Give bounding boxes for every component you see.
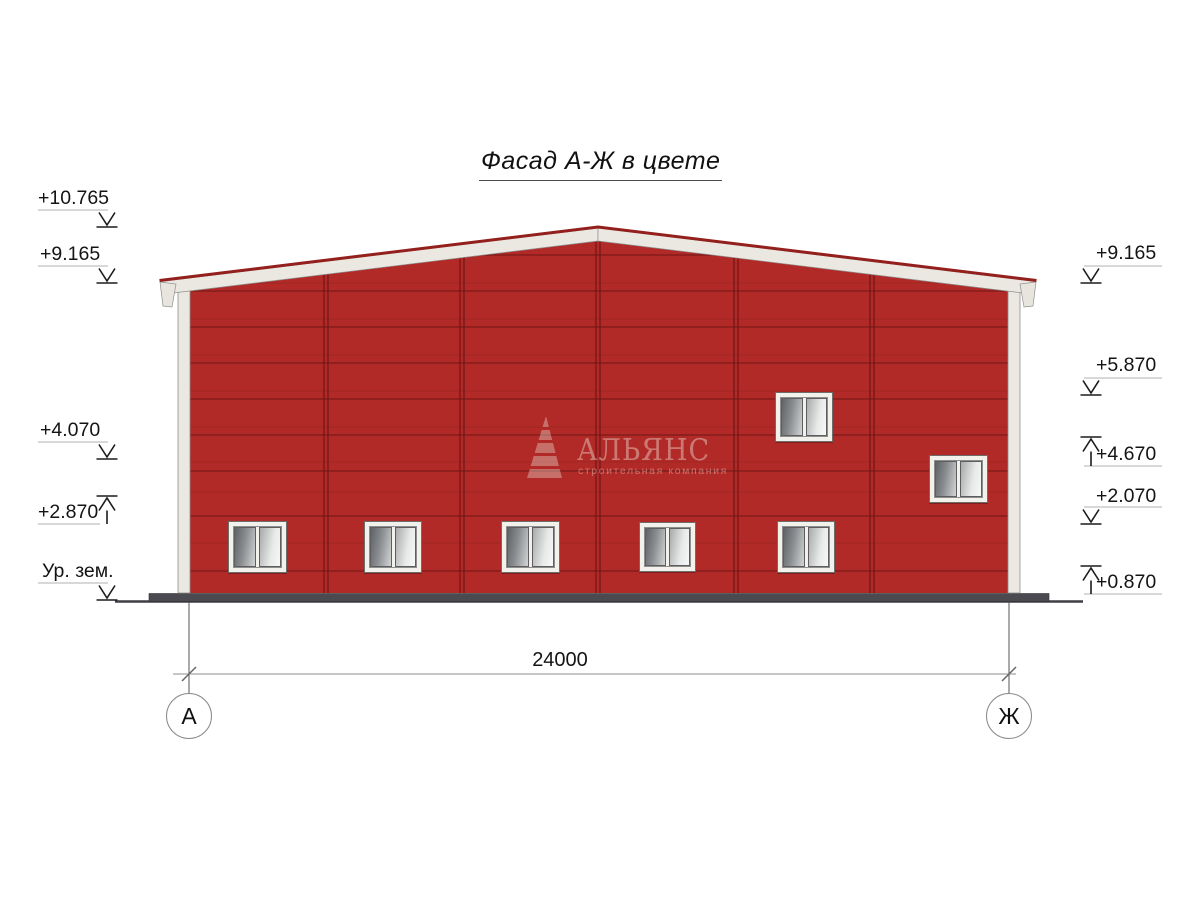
eave-drip-right <box>1020 282 1036 307</box>
elevation-arrow-up-icon <box>97 496 118 524</box>
elevation-label-right-0: +9.165 <box>1096 244 1156 263</box>
facade-drawing-sheet: Фасад А-Ж в цвете <box>0 0 1200 900</box>
window-pane-left <box>234 527 256 567</box>
window-glazing <box>644 527 691 567</box>
window-pane-right <box>259 527 281 567</box>
window-pane-left <box>781 398 803 436</box>
axis-bubble-zh: Ж <box>986 693 1032 739</box>
window-pane-right <box>806 398 828 436</box>
dimension-value: 24000 <box>520 649 600 672</box>
facade-wall <box>190 241 1008 593</box>
elevation-arrow-down-icon <box>97 445 118 460</box>
window-pane-left <box>507 527 529 567</box>
window-pane-left <box>935 461 957 497</box>
corner-trim-left <box>178 290 190 593</box>
elevation-label-left-1: +9.165 <box>40 245 100 264</box>
elevation-label-right-2: +4.670 <box>1096 445 1156 464</box>
window-glazing <box>934 460 983 498</box>
window-glazing <box>233 526 282 568</box>
axis-bubble-a: А <box>166 693 212 739</box>
elevation-label-left-2: +4.070 <box>40 421 100 440</box>
elevation-arrow-down-icon <box>1081 510 1102 525</box>
elevation-arrow-down-icon <box>1081 269 1102 284</box>
window <box>775 392 833 442</box>
elevation-arrow-down-icon <box>97 269 118 284</box>
window-pane-right <box>395 527 417 567</box>
window <box>929 455 988 503</box>
window <box>228 521 287 573</box>
watermark-company-name: АЛЬЯНС <box>577 433 710 468</box>
window <box>501 521 560 573</box>
elevation-label-left-3: +2.870 <box>38 503 98 522</box>
elevation-label-left-4: Ур. зем. <box>42 562 114 581</box>
window-pane-left <box>370 527 392 567</box>
window-glazing <box>782 526 830 568</box>
window-glazing <box>780 397 828 437</box>
eave-drip-left <box>160 282 176 307</box>
elevation-label-right-4: +0.870 <box>1096 573 1156 592</box>
elevation-arrow-down-icon <box>1081 381 1102 396</box>
window-pane-left <box>645 528 666 566</box>
elevation-arrow-down-icon <box>97 213 118 228</box>
window <box>777 521 835 573</box>
window-glazing <box>506 526 555 568</box>
window-pane-right <box>808 527 830 567</box>
window-pane-right <box>532 527 554 567</box>
window <box>639 522 696 572</box>
drawing-title: Фасад А-Ж в цвете <box>479 147 722 181</box>
elevation-label-right-3: +2.070 <box>1096 487 1156 506</box>
window <box>364 521 422 573</box>
window-glazing <box>369 526 417 568</box>
watermark-tagline: строительная компания <box>578 465 728 477</box>
corner-trim-right <box>1008 290 1020 593</box>
window-pane-right <box>669 528 690 566</box>
plinth-base <box>149 594 1049 602</box>
elevation-label-left-0: +10.765 <box>38 189 109 208</box>
window-pane-left <box>783 527 805 567</box>
elevation-label-right-1: +5.870 <box>1096 356 1156 375</box>
window-pane-right <box>960 461 982 497</box>
elevation-arrow-down-icon <box>97 586 118 601</box>
